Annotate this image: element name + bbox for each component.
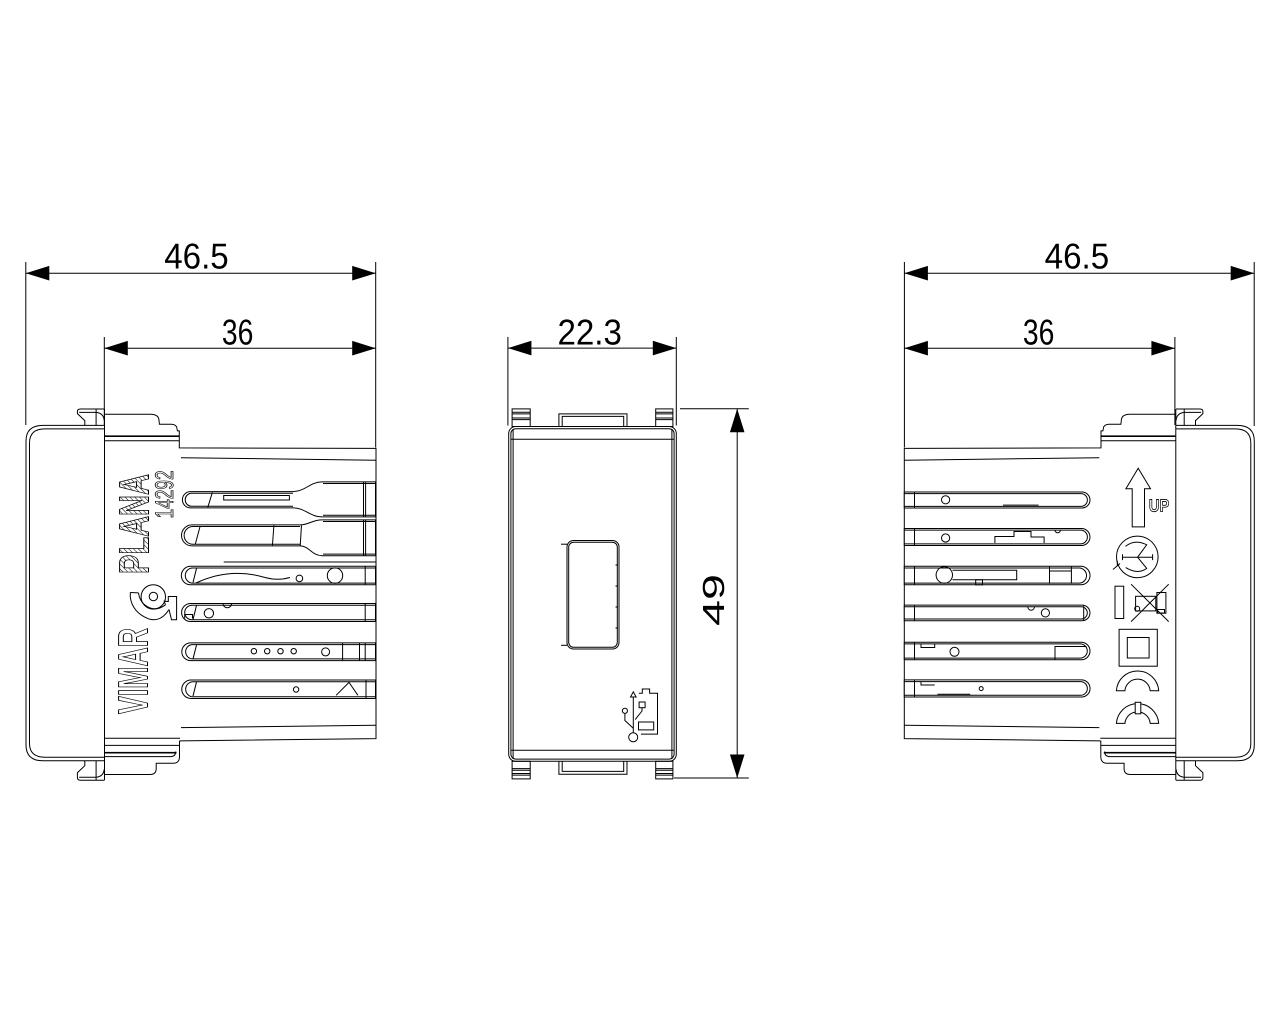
svg-text:22.3: 22.3 — [557, 312, 622, 353]
svg-text:UP: UP — [1149, 496, 1170, 516]
svg-text:49: 49 — [697, 574, 731, 626]
svg-text:VIMAR: VIMAR — [109, 628, 156, 714]
svg-text:36: 36 — [1023, 312, 1055, 353]
svg-text:14292: 14292 — [151, 470, 179, 518]
svg-text:36: 36 — [222, 312, 254, 353]
svg-text:46.5: 46.5 — [1045, 236, 1110, 277]
svg-text:46.5: 46.5 — [164, 236, 229, 277]
